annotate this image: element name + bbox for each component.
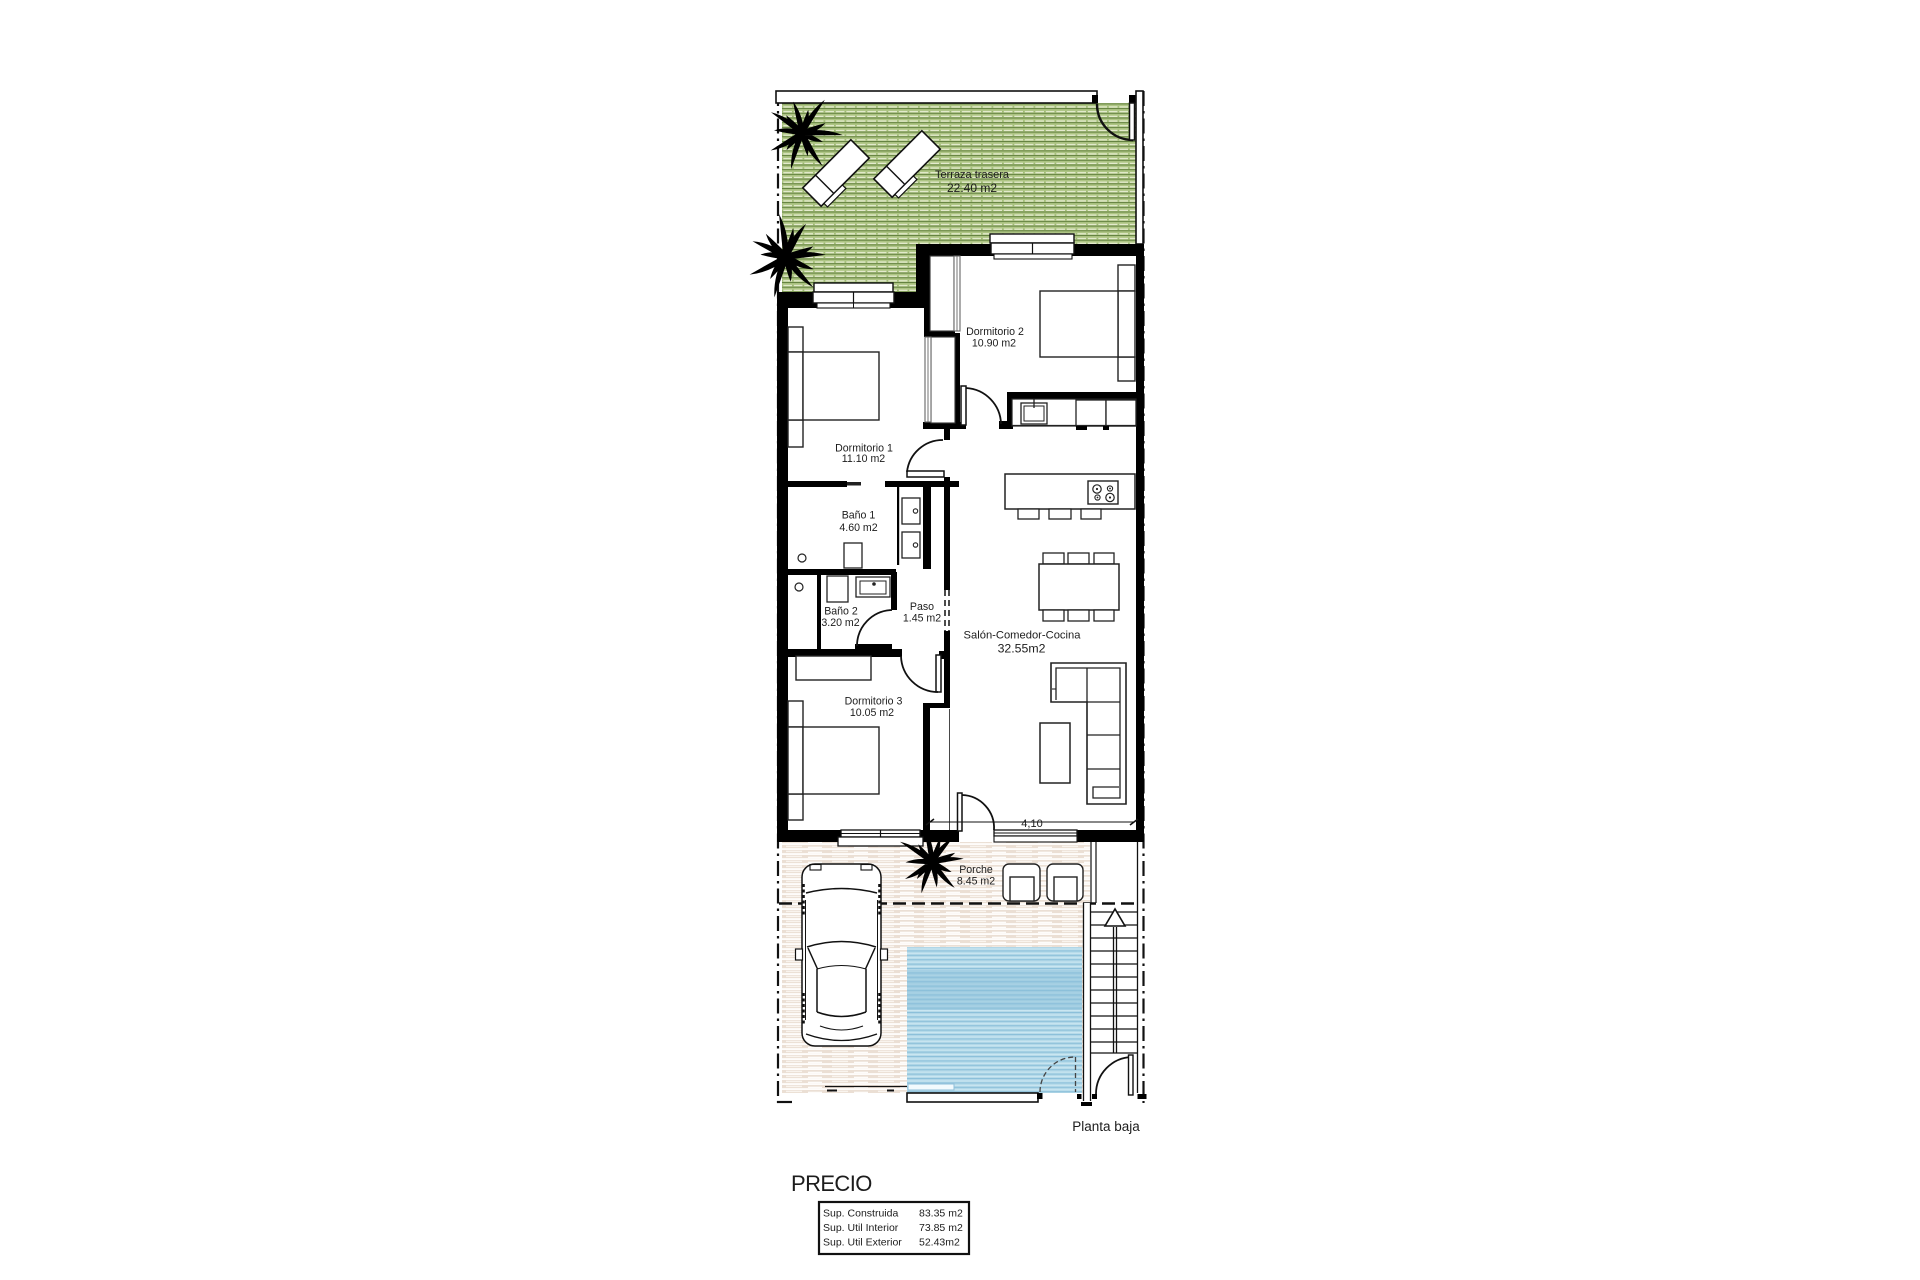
svg-text:Salón-Comedor-Cocina: Salón-Comedor-Cocina	[964, 630, 1082, 642]
svg-text:Dormitorio 3: Dormitorio 3	[845, 696, 903, 708]
svg-text:Planta baja: Planta baja	[1072, 1119, 1140, 1134]
svg-text:1.45 m2: 1.45 m2	[903, 613, 941, 625]
svg-text:10.05 m2: 10.05 m2	[850, 707, 894, 719]
svg-text:Baño 2: Baño 2	[824, 606, 858, 618]
svg-text:Terraza trasera: Terraza trasera	[935, 169, 1010, 181]
svg-text:22.40 m2: 22.40 m2	[947, 181, 997, 195]
svg-text:4,10: 4,10	[1021, 818, 1042, 830]
svg-text:Sup. Util Interior: Sup. Util Interior	[823, 1222, 899, 1234]
svg-text:73.85 m2: 73.85 m2	[919, 1222, 963, 1234]
svg-text:83.35 m2: 83.35 m2	[919, 1208, 963, 1220]
svg-text:32.55m2: 32.55m2	[998, 642, 1046, 656]
svg-text:52.43m2: 52.43m2	[919, 1237, 960, 1249]
svg-text:11.10 m2: 11.10 m2	[842, 453, 885, 465]
svg-text:3.20 m2: 3.20 m2	[821, 617, 859, 629]
svg-text:Sup. Util Exterior: Sup. Util Exterior	[823, 1237, 902, 1249]
svg-text:Porche: Porche	[959, 864, 993, 876]
svg-text:4.60 m2: 4.60 m2	[839, 522, 877, 534]
svg-text:10.90 m2: 10.90 m2	[972, 338, 1016, 350]
svg-text:PRECIO: PRECIO	[791, 1171, 872, 1196]
svg-text:Paso: Paso	[910, 601, 934, 613]
svg-text:Dormitorio 2: Dormitorio 2	[966, 326, 1024, 338]
svg-text:Baño 1: Baño 1	[842, 510, 876, 522]
svg-text:Sup. Construida: Sup. Construida	[823, 1208, 898, 1220]
svg-text:8.45 m2: 8.45 m2	[957, 876, 995, 888]
